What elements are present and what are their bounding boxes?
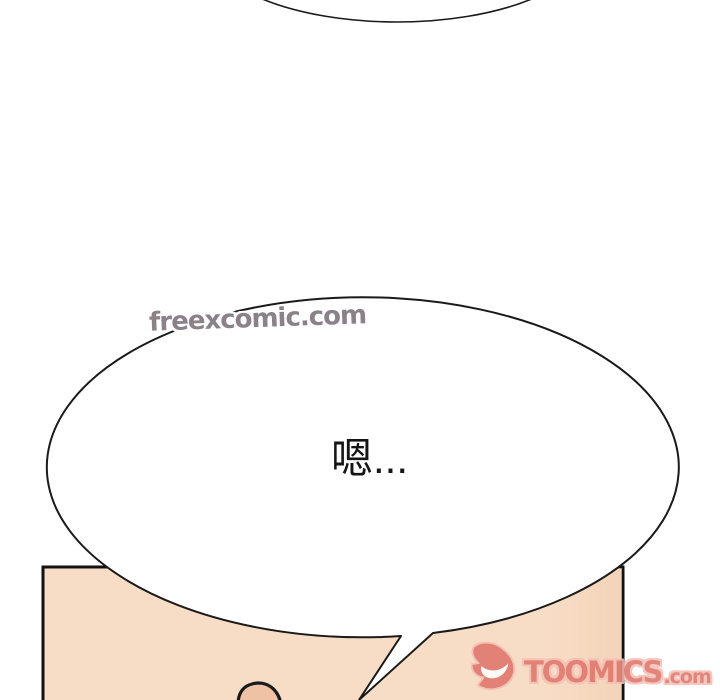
comic-page: freexcomic.com 嗯... TOOMICS .com <box>0 0 720 700</box>
dialogue-text: 嗯... <box>331 436 408 482</box>
comic-art <box>0 0 720 700</box>
toomics-domain-suffix: .com <box>663 666 710 688</box>
top-speech-bubble <box>205 0 589 22</box>
toomics-devil-d-icon <box>466 640 520 692</box>
toomics-logo: TOOMICS .com <box>466 640 711 692</box>
toomics-brand-text: TOOMICS <box>524 655 661 689</box>
